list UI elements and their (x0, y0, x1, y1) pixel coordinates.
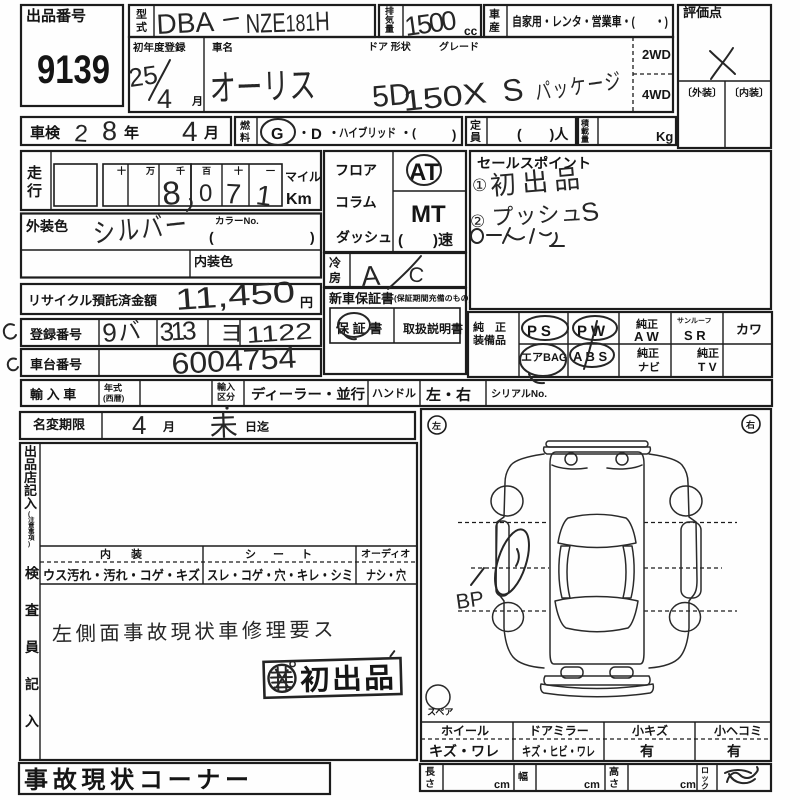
svg-text:月: 月 (162, 420, 175, 434)
svg-text:ク: ク (701, 782, 709, 791)
svg-text:さ: さ (609, 778, 619, 790)
svg-text:車検: 車検 (30, 125, 61, 142)
svg-text:ドア 形状: ドア 形状 (368, 41, 412, 53)
svg-text:ディーラー・並行: ディーラー・並行 (251, 386, 365, 402)
svg-text:7: 7 (225, 178, 242, 210)
svg-text:有: 有 (640, 743, 654, 759)
svg-text:十: 十 (117, 166, 126, 176)
svg-text:ー: ー (273, 549, 284, 561)
svg-text:登録番号: 登録番号 (29, 327, 82, 342)
svg-text:車: 車 (489, 8, 500, 21)
svg-text:入: 入 (24, 496, 37, 511)
svg-text:( )人: ( )人 (517, 126, 569, 142)
svg-text:2WD: 2WD (642, 47, 671, 62)
svg-text:装備品: 装備品 (472, 334, 506, 347)
svg-text:ト: ト (301, 549, 312, 561)
svg-text:行: 行 (26, 183, 42, 200)
svg-text:): ) (28, 541, 30, 548)
svg-text:左: 左 (431, 421, 441, 431)
svg-text:純正: 純正 (697, 347, 719, 360)
svg-text:燃: 燃 (240, 120, 251, 132)
svg-text:8: 8 (102, 116, 117, 146)
svg-text:年式: 年式 (104, 383, 122, 393)
svg-text:産: 産 (489, 21, 500, 34)
svg-text:T V: T V (698, 360, 717, 374)
svg-text:キズ・ヒビ・ワレ: キズ・ヒビ・ワレ (522, 744, 595, 759)
svg-text:式: 式 (136, 21, 147, 34)
svg-text:4WD: 4WD (642, 87, 671, 102)
svg-text:シリアルNo.: シリアルNo. (491, 389, 547, 400)
svg-text:キズ・ワレ: キズ・ワレ (429, 743, 499, 759)
svg-text:Kg: Kg (656, 129, 673, 144)
svg-text:車名: 車名 (212, 41, 233, 54)
svg-text:査: 査 (24, 602, 40, 618)
svg-text:員: 員 (24, 639, 39, 655)
svg-text:cm: cm (584, 779, 600, 791)
svg-text:評価点: 評価点 (683, 5, 722, 20)
svg-text:カワ: カワ (736, 322, 762, 337)
svg-text:・(: ・( (400, 126, 416, 140)
svg-text:月: 月 (191, 96, 203, 108)
svg-text:取扱説明書: 取扱説明書 (403, 322, 463, 336)
svg-text:(: ( (209, 229, 214, 245)
svg-text:十: 十 (234, 166, 243, 176)
svg-text:一: 一 (266, 166, 275, 176)
svg-text:cm: cm (680, 779, 696, 791)
svg-text:S R: S R (684, 328, 706, 343)
svg-text:シ: シ (245, 549, 256, 561)
svg-text:料: 料 (240, 132, 250, 144)
svg-text:9139: 9139 (37, 48, 110, 92)
svg-text:): ) (452, 127, 456, 142)
svg-text:小ヘコミ: 小ヘコミ (713, 724, 762, 738)
svg-text:ヨ: ヨ (220, 320, 243, 346)
svg-text:フロア: フロア (335, 162, 377, 178)
svg-text:マイル: マイル (285, 170, 321, 184)
svg-text:初出品: 初出品 (300, 662, 397, 696)
svg-text:ナビ: ナビ (638, 361, 660, 374)
svg-text:カラーNo.: カラーNo. (215, 216, 259, 227)
svg-text:〔外装〕: 〔外装〕 (682, 87, 722, 99)
svg-text:出品番号: 出品番号 (26, 8, 86, 25)
svg-text:オーリス: オーリス (209, 64, 316, 109)
svg-text:A B S: A B S (573, 349, 608, 364)
svg-text:輸入: 輸入 (217, 382, 235, 392)
svg-text:幅: 幅 (518, 771, 528, 783)
svg-text:バ: バ (116, 317, 142, 346)
svg-text:ウス汚れ・汚れ・コゲ・キズ: ウス汚れ・汚れ・コゲ・キズ (43, 568, 200, 583)
svg-text:(西暦): (西暦) (103, 394, 125, 403)
svg-text:DBA: DBA (156, 6, 215, 40)
svg-text:右: 右 (745, 420, 755, 430)
svg-text:コラム: コラム (335, 194, 377, 210)
svg-text:純 正: 純 正 (473, 321, 506, 334)
svg-text:スレ・コゲ・穴・キレ・シミ: スレ・コゲ・穴・キレ・シミ (207, 568, 353, 583)
svg-text:8: 8 (161, 174, 182, 212)
svg-text:A: A (360, 260, 381, 292)
svg-text:さ: さ (425, 778, 435, 790)
svg-text:4: 4 (182, 116, 198, 147)
svg-text:313: 313 (159, 315, 198, 347)
svg-text:記: 記 (25, 676, 39, 692)
svg-text:量: 量 (385, 24, 394, 34)
svg-text:ホイール: ホイール (441, 724, 489, 738)
svg-text:( )速: ( )速 (398, 232, 453, 249)
svg-text:未: 未 (209, 410, 238, 442)
svg-text:小キズ: 小キズ (631, 724, 668, 738)
svg-text:G: G (271, 126, 283, 143)
svg-text:プッシュ: プッシュ (491, 200, 584, 230)
svg-text:高: 高 (609, 766, 619, 778)
svg-text:名変期限: 名変期限 (33, 417, 86, 432)
svg-text:エアBAG: エアBAG (521, 352, 567, 364)
svg-text:左・右: 左・右 (425, 387, 471, 404)
svg-text:4: 4 (157, 84, 172, 114)
svg-text:日迄: 日迄 (245, 420, 269, 434)
svg-text:検: 検 (25, 565, 40, 581)
svg-text:リサイクル預託済金額: リサイクル預託済金額 (28, 293, 157, 308)
svg-text:ドアミラー: ドアミラー (529, 724, 589, 738)
svg-text:〔内装〕: 〔内装〕 (729, 87, 769, 99)
svg-text:BP: BP (454, 587, 485, 614)
svg-text:サンルーフ: サンルーフ (677, 317, 712, 325)
svg-text:ハイブリッド: ハイブリッド (339, 126, 396, 140)
svg-text:C: C (407, 263, 424, 287)
svg-text:Km: Km (286, 191, 312, 208)
svg-text:輸 入 車: 輸 入 車 (30, 387, 76, 402)
svg-text:0: 0 (199, 180, 212, 207)
svg-text:スペア: スペア (427, 707, 453, 717)
svg-text:D: D (311, 126, 322, 143)
svg-text:純正: 純正 (637, 347, 659, 360)
svg-text:6004754: 6004754 (171, 341, 298, 380)
svg-text:NZE181H: NZE181H (245, 6, 330, 39)
svg-text:(保証期間充備のもの): (保証期間充備のもの) (394, 294, 472, 303)
svg-text:外装色: 外装色 (25, 218, 68, 234)
svg-text:長: 長 (425, 766, 436, 778)
svg-text:①: ① (472, 176, 487, 195)
svg-text:4: 4 (132, 410, 146, 440)
svg-text:走: 走 (27, 165, 42, 182)
svg-text:内: 内 (100, 548, 111, 561)
svg-text:万: 万 (145, 166, 155, 176)
svg-text:年: 年 (124, 124, 139, 142)
svg-text:2: 2 (74, 120, 89, 148)
svg-text:): ) (310, 229, 315, 245)
svg-text:入: 入 (25, 713, 39, 729)
svg-text:冷: 冷 (329, 256, 341, 270)
svg-text:型: 型 (136, 8, 147, 21)
svg-text:有: 有 (727, 743, 741, 759)
svg-text:グレード: グレード (439, 41, 479, 53)
svg-text:ダッシュ: ダッシュ (336, 229, 392, 245)
svg-text:ハンドル: ハンドル (372, 388, 416, 400)
svg-text:新車保証書: 新車保証書 (329, 291, 394, 306)
svg-text:百: 百 (202, 166, 211, 176)
svg-text:装: 装 (130, 548, 143, 561)
svg-text:月: 月 (203, 125, 219, 142)
svg-text:量: 量 (581, 135, 589, 144)
svg-text:ナシ・穴: ナシ・穴 (366, 568, 406, 583)
svg-text:初年度登録: 初年度登録 (133, 41, 186, 54)
svg-text:円: 円 (300, 295, 313, 310)
svg-text:内装色: 内装色 (194, 254, 233, 269)
svg-text:A W: A W (634, 329, 660, 344)
svg-text:・: ・ (298, 126, 310, 140)
svg-text:cm: cm (494, 779, 510, 791)
svg-text:区分: 区分 (217, 392, 235, 402)
svg-text:自家用・レンタ・営業車・( ・): 自家用・レンタ・営業車・( ・) (512, 14, 668, 29)
svg-text:房: 房 (329, 271, 341, 285)
svg-text:員: 員 (469, 131, 481, 144)
svg-text:オーディオ: オーディオ (361, 548, 410, 560)
svg-text:車台番号: 車台番号 (30, 357, 82, 372)
svg-text:定: 定 (469, 119, 481, 132)
svg-text:MT: MT (411, 201, 446, 228)
